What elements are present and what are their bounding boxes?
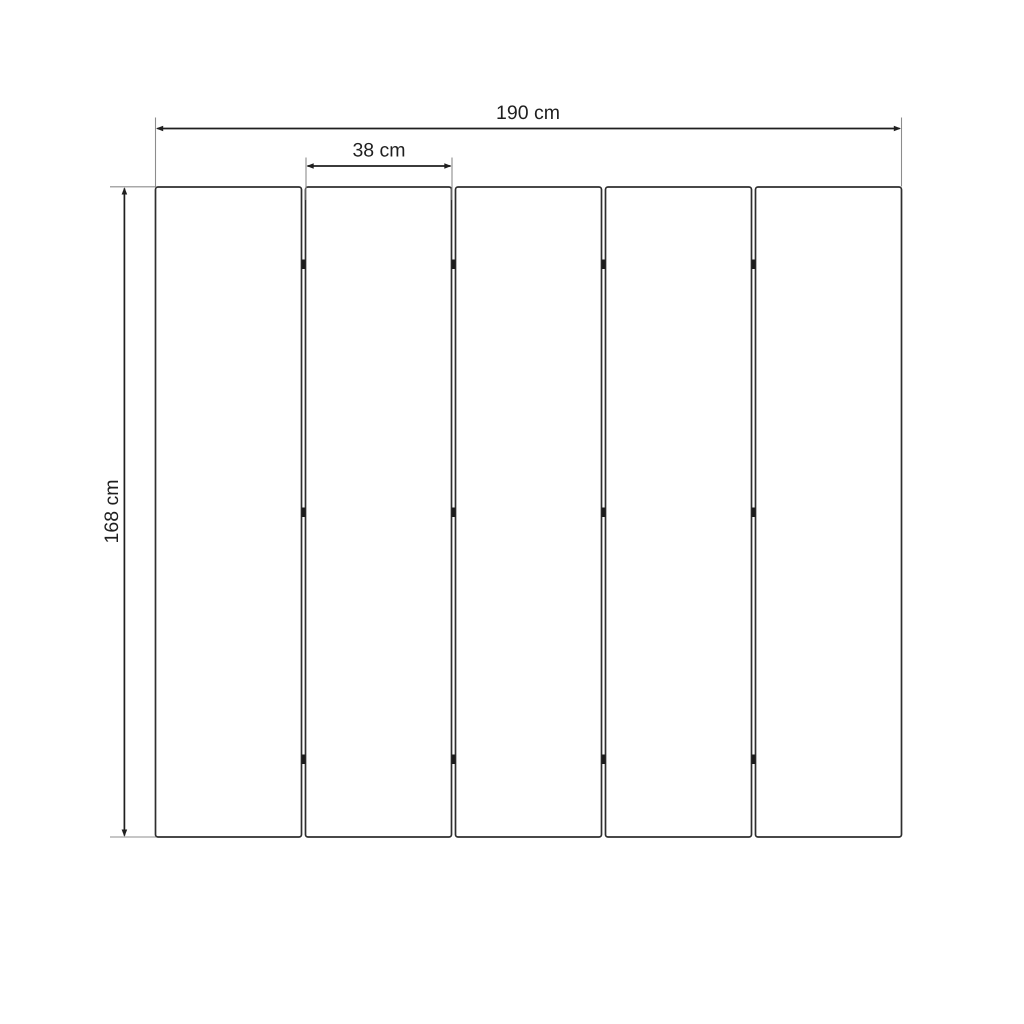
svg-text:168 cm: 168 cm bbox=[101, 480, 123, 544]
svg-text:38 cm: 38 cm bbox=[352, 140, 405, 162]
svg-text:190 cm: 190 cm bbox=[496, 102, 560, 124]
